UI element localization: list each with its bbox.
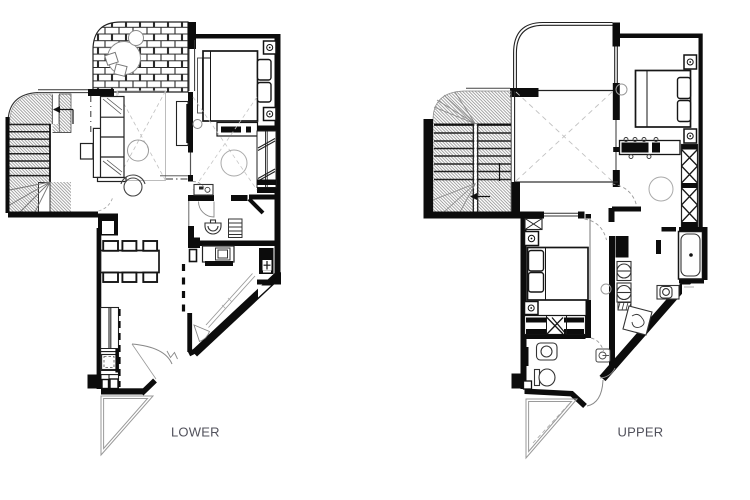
svg-text:LOWER: LOWER: [171, 425, 220, 440]
svg-text:UPPER: UPPER: [618, 425, 664, 440]
